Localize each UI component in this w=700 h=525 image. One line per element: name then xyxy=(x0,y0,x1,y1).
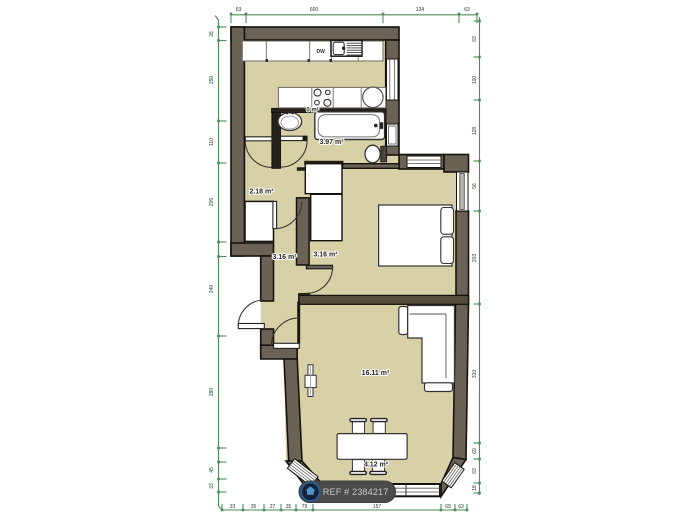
svg-text:56: 56 xyxy=(472,183,478,189)
svg-text:157: 157 xyxy=(373,504,382,510)
svg-text:79: 79 xyxy=(302,504,308,510)
svg-text:45: 45 xyxy=(209,467,215,473)
svg-text:69: 69 xyxy=(445,504,451,510)
svg-text:26: 26 xyxy=(209,31,215,37)
svg-text:0 m²: 0 m² xyxy=(306,107,318,114)
svg-text:128: 128 xyxy=(472,127,478,136)
svg-text:63: 63 xyxy=(464,7,470,13)
svg-text:250: 250 xyxy=(209,76,215,85)
svg-text:2.18 m²: 2.18 m² xyxy=(249,189,274,196)
svg-text:310: 310 xyxy=(472,370,478,379)
svg-text:18: 18 xyxy=(472,485,478,491)
svg-text:63: 63 xyxy=(458,504,464,510)
svg-text:134: 134 xyxy=(416,7,425,13)
svg-text:63: 63 xyxy=(236,7,242,13)
svg-text:27: 27 xyxy=(270,504,276,510)
svg-text:290: 290 xyxy=(209,388,215,397)
svg-text:240: 240 xyxy=(209,285,215,294)
svg-text:3.16 m²: 3.16 m² xyxy=(272,254,297,261)
svg-text:63: 63 xyxy=(472,36,478,42)
svg-text:16.11 m²: 16.11 m² xyxy=(362,370,390,377)
svg-text:3.97 m²: 3.97 m² xyxy=(319,139,344,146)
svg-text:110: 110 xyxy=(209,138,215,146)
svg-text:33: 33 xyxy=(209,483,215,489)
svg-text:35: 35 xyxy=(251,504,257,510)
svg-text:33: 33 xyxy=(230,504,236,510)
svg-text:REF # 2384217: REF # 2384217 xyxy=(323,487,389,497)
svg-text:69: 69 xyxy=(472,448,478,454)
svg-text:205: 205 xyxy=(209,198,215,207)
svg-text:600: 600 xyxy=(310,7,319,13)
svg-text:DW: DW xyxy=(317,49,326,55)
svg-text:203: 203 xyxy=(472,254,478,263)
svg-text:4.12 m²: 4.12 m² xyxy=(364,462,389,469)
svg-text:63: 63 xyxy=(472,468,478,474)
svg-text:35: 35 xyxy=(286,504,292,510)
svg-text:100: 100 xyxy=(472,76,478,85)
svg-text:3.16 m²: 3.16 m² xyxy=(313,252,338,259)
